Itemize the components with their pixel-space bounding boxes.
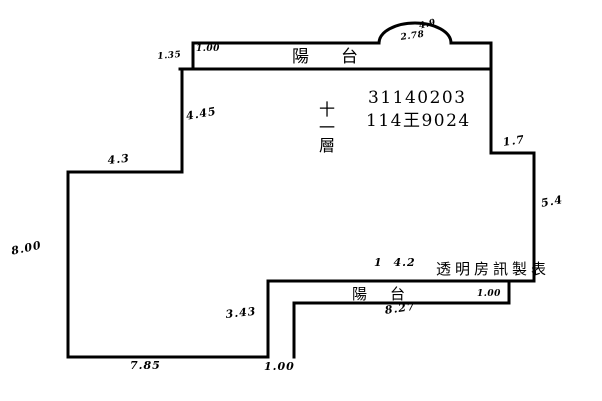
floorplan: 陽台 1.00 1.35 4.9 2.78 31140203 114王9024 … <box>0 0 602 401</box>
unit-outline-path <box>68 23 534 357</box>
maker-credit: 透明房訊製表 <box>436 258 550 279</box>
top-balcony-label: 陽台 <box>292 42 390 67</box>
dim-bottom-balcony-right-label: 1.00 <box>477 289 501 299</box>
dim-top-balcony-inner-label: 1.00 <box>196 44 220 54</box>
dim-top-balcony-left-label: 1.35 <box>157 50 182 62</box>
case-number: 31140203 <box>368 88 467 108</box>
dim-top-left-wall-label: 4.3 <box>107 152 130 167</box>
dim-bottom-step-label: 1.00 <box>264 360 295 373</box>
floor-label: 十一層 <box>319 101 339 155</box>
bottom-balcony-label: 陽台 <box>352 283 428 304</box>
dim-bottom-wall-label: 7.85 <box>130 359 161 372</box>
dim-lower-wall-inner-label: 1 4.2 <box>374 256 416 269</box>
building-number: 114王9024 <box>366 106 471 131</box>
